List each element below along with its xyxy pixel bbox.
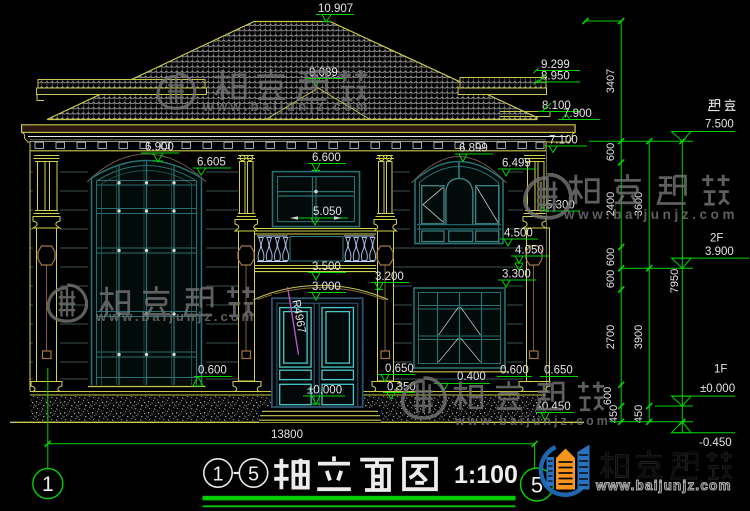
svg-text:-0.450: -0.450	[699, 437, 732, 449]
svg-text:4.500: 4.500	[504, 228, 533, 240]
svg-text:1F: 1F	[714, 364, 727, 376]
svg-text:www.baijunjz.com: www.baijunjz.com	[202, 99, 371, 114]
svg-text:600: 600	[602, 387, 614, 405]
svg-text:4.050: 4.050	[515, 245, 544, 257]
svg-text:3.500: 3.500	[312, 261, 341, 273]
svg-text:1: 1	[42, 473, 54, 496]
svg-text:www.baijunjz.com: www.baijunjz.com	[454, 414, 611, 428]
svg-text:7.900: 7.900	[563, 108, 592, 120]
svg-text:9.299: 9.299	[541, 59, 570, 71]
svg-text:3.900: 3.900	[705, 246, 734, 258]
svg-text:6.605: 6.605	[197, 157, 226, 169]
svg-text:600: 600	[605, 270, 617, 288]
svg-text:5: 5	[248, 464, 259, 486]
svg-text:6.499: 6.499	[502, 158, 531, 170]
svg-text:1: 1	[212, 464, 223, 486]
svg-text:www.baijunjz.com: www.baijunjz.com	[595, 478, 732, 493]
svg-text:600: 600	[605, 143, 617, 161]
svg-text:±0.000: ±0.000	[700, 383, 735, 395]
svg-text:5.050: 5.050	[313, 206, 342, 218]
svg-text:0.400: 0.400	[457, 371, 486, 383]
svg-text:6.600: 6.600	[312, 152, 341, 164]
svg-text:13800: 13800	[271, 429, 303, 441]
svg-text:7950: 7950	[669, 269, 681, 293]
svg-text:±0.000: ±0.000	[307, 385, 342, 397]
svg-text:0.650: 0.650	[385, 363, 414, 375]
svg-text:3407: 3407	[605, 69, 617, 93]
svg-text:3.000: 3.000	[312, 281, 341, 293]
svg-text:0.600: 0.600	[198, 365, 227, 377]
svg-text:www.baijunjz.com: www.baijunjz.com	[95, 309, 256, 324]
svg-text:3.200: 3.200	[375, 271, 404, 283]
svg-text:www.baijunjz.com: www.baijunjz.com	[563, 207, 738, 222]
svg-text:6.899: 6.899	[459, 143, 488, 155]
svg-text:9.089: 9.089	[309, 67, 338, 79]
svg-text:7.100: 7.100	[549, 135, 578, 147]
svg-text:2700: 2700	[605, 325, 617, 349]
svg-text:0.650: 0.650	[544, 365, 573, 377]
svg-text:7.500: 7.500	[705, 119, 734, 131]
svg-text:600: 600	[605, 248, 617, 266]
svg-text:3900: 3900	[633, 325, 645, 349]
svg-text:8.950: 8.950	[541, 71, 570, 83]
svg-text:2F: 2F	[710, 233, 723, 245]
svg-text:3.300: 3.300	[502, 269, 531, 281]
svg-text:1:100: 1:100	[454, 461, 518, 489]
svg-text:-0.450: -0.450	[538, 401, 571, 413]
svg-text:6.900: 6.900	[145, 142, 174, 154]
svg-text:450: 450	[633, 405, 645, 423]
svg-text:10.907: 10.907	[318, 3, 353, 15]
svg-text:0.600: 0.600	[500, 365, 529, 377]
